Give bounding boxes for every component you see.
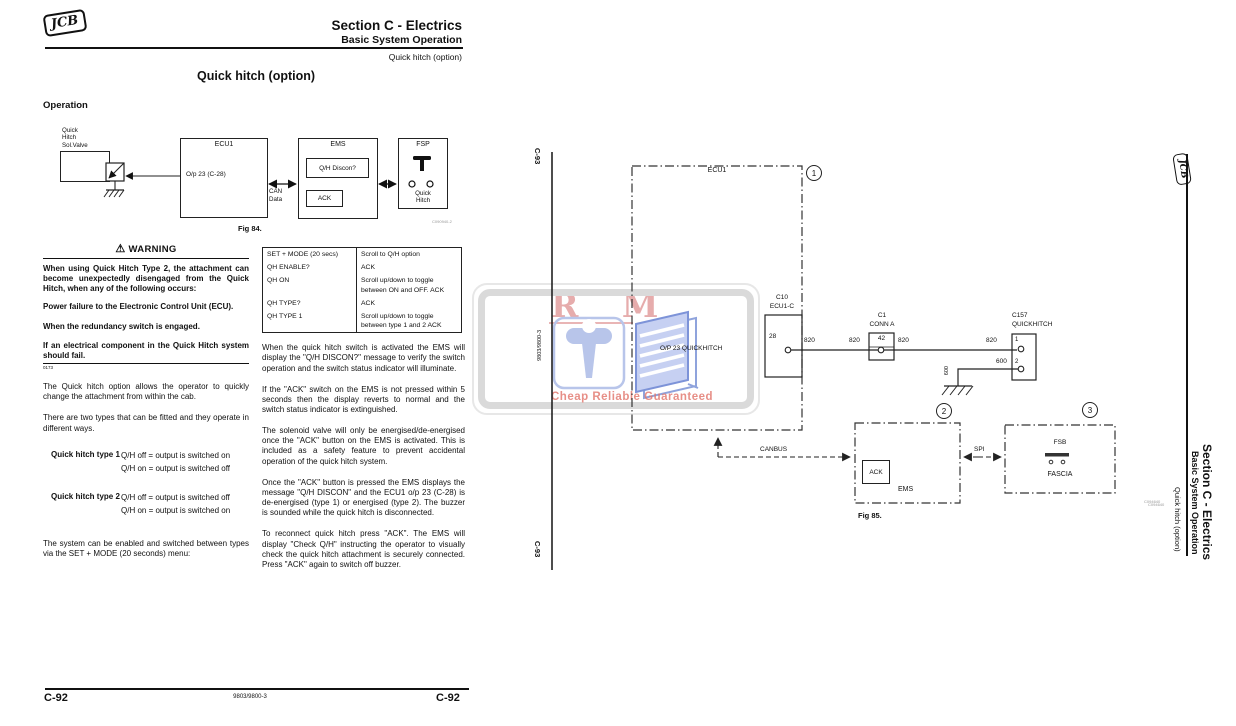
wire-600 [958,369,1018,386]
menu-value: Scroll up/down to toggle between ON and … [357,274,462,296]
left-column: ⚠ WARNING When using Quick Hitch Type 2,… [43,242,249,559]
sidebar-jcb-logo-text: JCB [1172,153,1192,186]
c157-label: C157 [1012,312,1028,319]
c1-label: C1 [857,312,907,319]
menu-key: QH ON [263,274,357,296]
wire-820-label: 820 [804,337,815,344]
wire-600-vertical-label: 600 [944,366,950,375]
ecu1-label: ECU1 [632,167,802,174]
table-row: SET + MODE (20 secs) Scroll to Q/H optio… [263,248,462,262]
c10-connector-box [765,315,802,377]
warning-icon: ⚠ [115,243,125,255]
menu-note: The system can be enabled and switched b… [43,539,249,559]
callout-2: 2 [936,403,952,419]
op23-quickhitch-label: O/P 23 QUICKHITCH [660,345,722,352]
intro-paragraph-2: There are two types that can be fitted a… [43,413,249,433]
operation-paragraph-3: The solenoid valve will only be energise… [262,426,465,467]
table-row: QH TYPE 1 Scroll up/down to toggle betwe… [263,310,462,333]
fig85-drawing-ref: C094640 [1144,499,1160,504]
operation-paragraph-4: Once the "ACK" button is pressed the EMS… [262,478,465,519]
c10-label: C10 [762,294,802,301]
callout-3: 3 [1082,402,1098,418]
fsb-switch-icon [1045,453,1069,457]
menu-key: QH TYPE 1 [263,310,357,333]
page-title: Quick hitch (option) [197,69,315,83]
jcb-logo-text: JCB [43,9,87,37]
wire-820-label: 820 [898,337,909,344]
warning-rule-bottom [43,363,249,364]
manual-page: JCB Section C - Electrics Basic System O… [0,0,1236,726]
pin-28-label: 28 [769,333,776,340]
operation-paragraph-1: When the quick hitch switch is activated… [262,343,465,373]
type2-line2: Q/H on = output is switched on [121,505,249,518]
warning-ref: 0173 [43,365,249,370]
table-row: QH ON Scroll up/down to toggle between O… [263,274,462,296]
intro-paragraph-1: The Quick hitch option allows the operat… [43,382,249,402]
fascia-label: FASCIA [1005,471,1115,478]
pushbutton-icon [413,156,431,160]
fig85-schematic-graphics [530,140,1170,585]
menu-key: QH ENABLE? [263,261,357,274]
warning-intro: When using Quick Hitch Type 2, the attac… [43,264,249,294]
sidebar-subsection: Basic System Operation [1190,451,1200,555]
menu-table: SET + MODE (20 secs) Scroll to Q/H optio… [262,247,462,333]
menu-value: ACK [357,261,462,274]
wire-600-label: 600 [996,358,1007,365]
fsb-label: FSB [1005,439,1115,446]
header-section: Section C - Electrics [240,18,462,33]
footer-part-number: 9803/9800-3 [200,694,300,700]
operation-heading: Operation [43,100,88,111]
menu-value: Scroll up/down to toggle between type 1 … [357,310,462,333]
header-subsection: Basic System Operation [240,34,462,46]
footer-rule [45,688,469,690]
type2-row: Quick hitch type 2 Q/H off = output is s… [43,492,249,518]
sidebar-rule [1186,154,1188,556]
c157-quickhitch-label: QUICKHITCH [1012,321,1052,328]
canbus-label: CANBUS [760,446,787,453]
menu-key: QH TYPE? [263,297,357,310]
operation-paragraph-5: To reconnect quick hitch press "ACK". Th… [262,529,465,570]
type2-label: Quick hitch type 2 [43,492,121,518]
fig84-wiring-graphics [40,118,480,243]
wire-820-label: 820 [986,337,997,344]
type1-row: Quick hitch type 1 Q/H off = output is s… [43,450,249,476]
footer-page-right: C-92 [436,692,460,704]
sidebar-section: Section C - Electrics [1200,444,1214,560]
type1-line2: Q/H on = output is switched off [121,463,249,476]
warning-item-1: Power failure to the Electronic Control … [43,302,249,312]
header-rule [45,47,463,49]
pin-1-label: 1 [1015,337,1018,343]
wire-820-label: 820 [849,337,860,344]
table-row: QH TYPE? ACK [263,297,462,310]
menu-value: ACK [357,297,462,310]
conn-a-label: CONN A [857,321,907,328]
warning-rule-top [43,258,249,259]
ems-label: EMS [898,486,913,493]
footer-page-left: C-92 [44,692,68,704]
warning-item-3: If an electrical component in the Quick … [43,341,249,361]
c93-label-bottom: C-93 [533,541,542,557]
sidebar-jcb-logo: JCB [1172,152,1196,186]
pin-2-label: 2 [1015,359,1018,365]
sidebar-topic: Quick hitch (option) [1173,487,1182,552]
pin-42-label: 42 [869,335,894,342]
type1-line1: Q/H off = output is switched on [121,450,249,463]
jcb-logo: JCB [43,9,87,37]
menu-value: Scroll to Q/H option [357,248,462,262]
operation-paragraph-2: If the "ACK" switch on the EMS is not pr… [262,385,465,415]
c93-label-top: C-93 [533,148,542,164]
middle-column: SET + MODE (20 secs) Scroll to Q/H optio… [262,247,465,570]
type1-label: Quick hitch type 1 [43,450,121,476]
table-row: QH ENABLE? ACK [263,261,462,274]
header-topic: Quick hitch (option) [240,52,462,62]
schematic-part-number: 9803/9800-3 [537,330,543,361]
spi-label: SPI [974,446,984,453]
type2-line1: Q/H off = output is switched off [121,492,249,505]
callout-1: 1 [806,165,822,181]
warning-title: WARNING [129,244,177,255]
ems-ack-box: ACK [862,460,890,484]
ecu1-c-label: ECU1-C [762,303,802,310]
warning-item-2: When the redundancy switch is engaged. [43,322,249,332]
fascia-enclosure [1005,425,1115,493]
warning-heading: ⚠ WARNING [43,242,249,255]
fig85-caption: Fig 85. [858,511,882,520]
menu-key: SET + MODE (20 secs) [263,248,357,262]
